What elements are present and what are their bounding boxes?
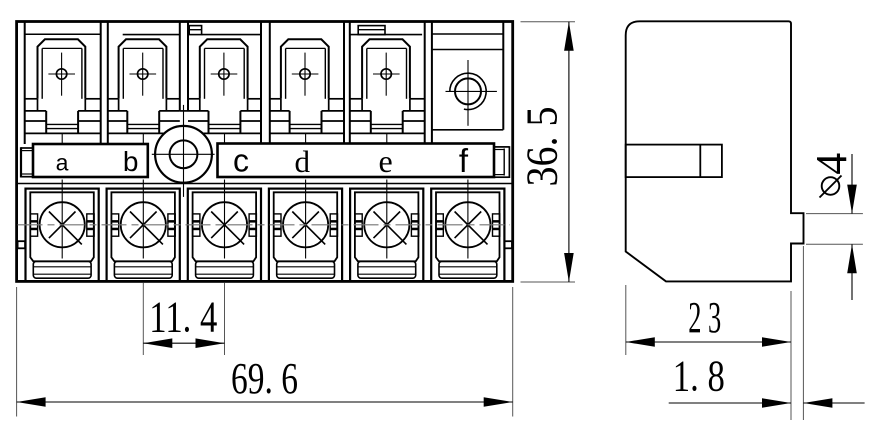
svg-text:1. 8: 1. 8 xyxy=(673,352,725,401)
svg-text:11. 4: 11. 4 xyxy=(149,293,217,342)
svg-text:e: e xyxy=(378,143,392,179)
svg-text:c: c xyxy=(233,143,249,179)
svg-text:f: f xyxy=(459,142,469,179)
svg-text:36. 5: 36. 5 xyxy=(518,107,567,187)
svg-text:2 3: 2 3 xyxy=(688,293,721,342)
svg-text:4: 4 xyxy=(807,153,856,175)
svg-text:69. 6: 69. 6 xyxy=(231,354,298,403)
svg-text:b: b xyxy=(123,146,139,177)
svg-text:a: a xyxy=(56,150,69,176)
svg-text:d: d xyxy=(295,144,311,179)
